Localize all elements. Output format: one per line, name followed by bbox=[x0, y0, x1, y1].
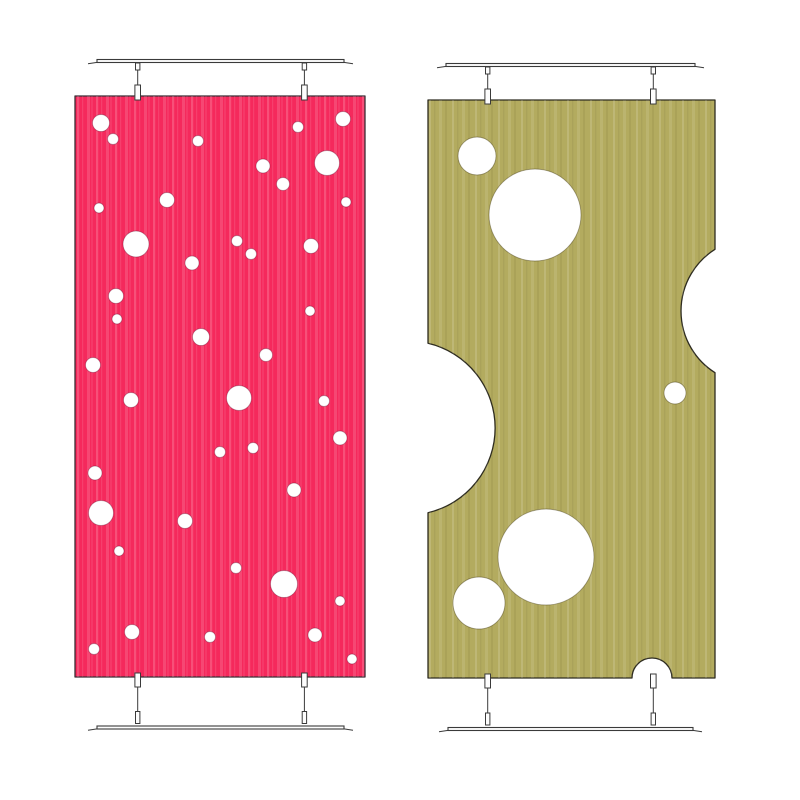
panel-bottom-hanger-fitting bbox=[302, 673, 308, 687]
cutout-hole bbox=[94, 203, 104, 213]
product-render-canvas bbox=[0, 0, 800, 800]
olive-cheese-panel bbox=[428, 100, 715, 678]
panel-top-hanger-fitting bbox=[135, 85, 141, 100]
cutout-hole bbox=[86, 358, 101, 373]
cutout-hole bbox=[458, 137, 496, 175]
rail-end-tip bbox=[695, 66, 704, 67]
cutout-hole bbox=[215, 447, 226, 458]
cutout-hole bbox=[308, 628, 322, 642]
rail-end-tip bbox=[88, 62, 97, 63]
panel-top-hanger-fitting bbox=[485, 89, 491, 104]
cutout-hole bbox=[123, 231, 149, 257]
olive-panel-assembly bbox=[428, 64, 715, 732]
cutout-hole bbox=[232, 236, 243, 247]
cutout-hole bbox=[89, 644, 100, 655]
rail-clevis-fitting bbox=[486, 67, 490, 74]
cutout-hole bbox=[193, 136, 204, 147]
pink-polka-dot-panel bbox=[75, 96, 365, 677]
cutout-hole bbox=[664, 382, 686, 404]
cutout-hole bbox=[193, 329, 210, 346]
cutout-hole bbox=[335, 596, 345, 606]
cutout-hole bbox=[88, 466, 102, 480]
cutout-hole bbox=[124, 393, 139, 408]
cutout-hole bbox=[347, 654, 357, 664]
rail-end-tip bbox=[344, 729, 353, 730]
cutout-hole bbox=[160, 193, 175, 208]
cutout-hole bbox=[248, 443, 259, 454]
cutout-hole bbox=[185, 256, 199, 270]
cutout-hole bbox=[304, 239, 319, 254]
cutout-hole bbox=[125, 625, 140, 640]
pink-panel-assembly bbox=[75, 60, 365, 731]
rail-clevis-fitting bbox=[651, 67, 655, 74]
cutout-hole bbox=[109, 289, 124, 304]
rail-end-tip bbox=[88, 729, 97, 730]
cutout-hole bbox=[112, 314, 122, 324]
cutout-hole bbox=[108, 134, 119, 145]
cutout-hole bbox=[489, 169, 581, 261]
cutout-hole bbox=[260, 349, 273, 362]
panel-top-hanger-fitting bbox=[651, 89, 657, 104]
hanging-panels-figure bbox=[0, 0, 800, 800]
cutout-hole bbox=[277, 178, 290, 191]
cutout-hole bbox=[178, 514, 193, 529]
cutout-hole bbox=[231, 563, 242, 574]
suspension-rail bbox=[448, 728, 693, 731]
cutout-hole bbox=[333, 431, 347, 445]
cutout-hole bbox=[315, 151, 340, 176]
rail-end-tip bbox=[344, 62, 353, 63]
rail-clevis-fitting bbox=[486, 713, 490, 725]
cutout-hole bbox=[93, 115, 110, 132]
suspension-rail bbox=[97, 60, 344, 63]
rail-clevis-fitting bbox=[136, 63, 140, 70]
cutout-hole bbox=[341, 197, 351, 207]
rail-clevis-fitting bbox=[136, 712, 140, 724]
cutout-hole bbox=[293, 122, 304, 133]
rail-end-tip bbox=[693, 730, 702, 731]
cutout-hole bbox=[319, 396, 330, 407]
cutout-hole bbox=[246, 249, 257, 260]
cutout-hole bbox=[114, 546, 124, 556]
suspension-rail bbox=[97, 726, 344, 729]
cutout-hole bbox=[336, 112, 351, 127]
scene-svg bbox=[0, 0, 800, 800]
cutout-hole bbox=[287, 483, 301, 497]
rail-clevis-fitting bbox=[302, 63, 306, 70]
panel-bottom-hanger-fitting bbox=[135, 673, 141, 687]
rail-end-tip bbox=[439, 730, 448, 731]
rail-clevis-fitting bbox=[302, 712, 306, 724]
suspension-rail bbox=[446, 64, 695, 67]
cutout-hole bbox=[256, 159, 270, 173]
panel-bottom-hanger-fitting bbox=[485, 674, 491, 688]
rail-end-tip bbox=[437, 66, 446, 67]
panel-bottom-hanger-fitting bbox=[651, 674, 657, 688]
cutout-hole bbox=[498, 509, 594, 605]
panel-top-hanger-fitting bbox=[302, 85, 308, 100]
pink-polka-dot-panel-texture bbox=[75, 96, 365, 677]
cutout-hole bbox=[271, 571, 298, 598]
rail-clevis-fitting bbox=[651, 713, 655, 725]
cutout-hole bbox=[227, 386, 252, 411]
cutout-hole bbox=[89, 501, 114, 526]
cutout-hole bbox=[305, 306, 315, 316]
cutout-hole bbox=[453, 577, 505, 629]
cutout-hole bbox=[205, 632, 216, 643]
